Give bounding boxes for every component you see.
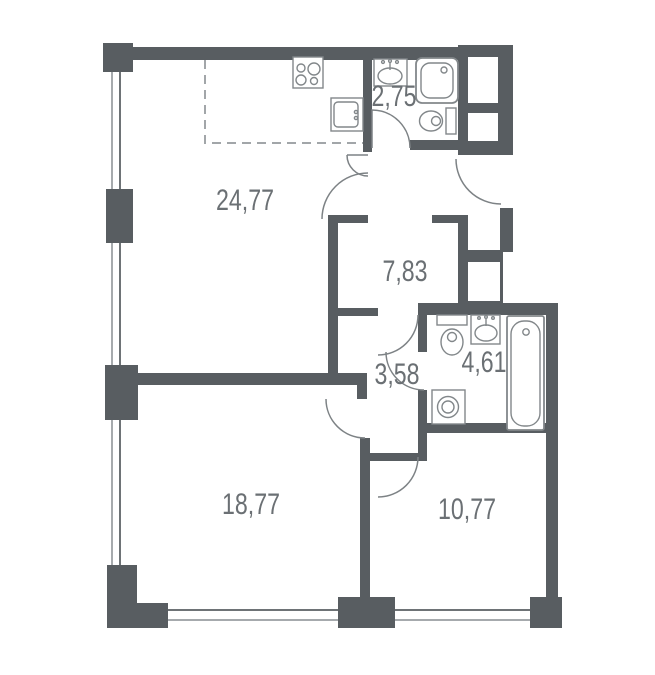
washbasin-icon [471, 315, 500, 344]
room-area-label-hallway: 7,83 [383, 255, 428, 288]
kitchen-sink-icon [331, 98, 363, 131]
bathtub-icon [507, 316, 544, 430]
room-area-label-bedroom-small: 10,77 [438, 493, 496, 526]
stove-icon [293, 57, 323, 88]
room-area-label-hallway-inner: 3,58 [375, 358, 420, 391]
room-area-label-bathroom-top: 2,75 [372, 80, 417, 113]
washing-machine-icon [432, 390, 465, 424]
shower-icon [416, 58, 458, 103]
room-area-label-bathroom-main: 4,61 [462, 346, 507, 379]
room-area-label-kitchen-living: 24,77 [216, 184, 274, 217]
toilet-icon [420, 108, 457, 134]
window-left [112, 72, 120, 565]
floor-plan-drawing: 24,77 2,75 7,83 3,58 4,61 18,77 10,77 [0, 0, 655, 675]
room-area-label-bedroom-large: 18,77 [222, 488, 280, 521]
floor-plan: 24,77 2,75 7,83 3,58 4,61 18,77 10,77 [0, 0, 655, 675]
